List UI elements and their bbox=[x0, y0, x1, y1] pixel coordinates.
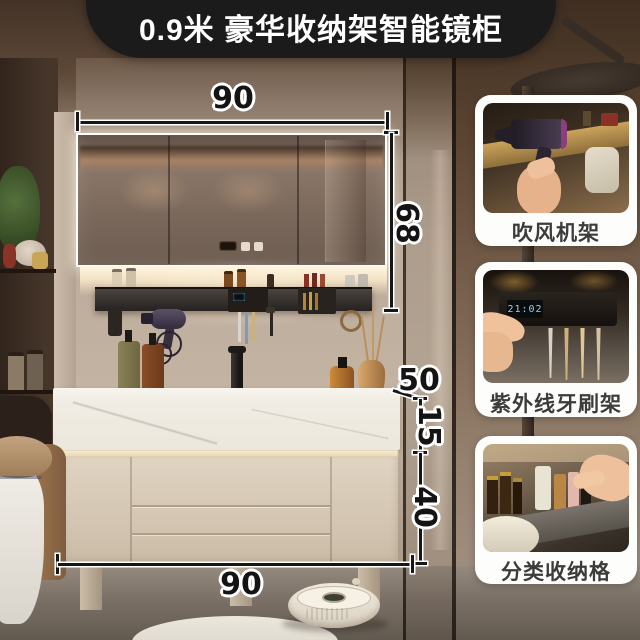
amber-bottle-cap bbox=[338, 357, 347, 368]
under-counter-light bbox=[60, 450, 398, 457]
amber-glow bbox=[489, 270, 539, 294]
toothbrush bbox=[238, 312, 241, 342]
mirror-seam bbox=[168, 136, 170, 264]
mirror-defog-button-icon bbox=[254, 242, 263, 251]
feature-label: 分类收纳格 bbox=[483, 552, 629, 590]
hair-dryer-ring bbox=[561, 119, 567, 149]
glass-frame-line bbox=[452, 55, 456, 640]
feature-card-hair-dryer: 吹风机架 bbox=[475, 95, 637, 246]
hair-dryer-barrel bbox=[511, 119, 563, 149]
mirror-light-spot bbox=[118, 168, 190, 214]
cabinet-leg bbox=[80, 566, 102, 610]
gold-jar bbox=[32, 252, 48, 269]
page-title: 0.9米 豪华收纳架智能镜柜 bbox=[139, 5, 503, 49]
dimension-top-width: 90 bbox=[188, 84, 278, 114]
mirror-door-reflection bbox=[325, 140, 366, 262]
toilet-seat-line bbox=[0, 476, 42, 479]
dimension-bottom-width: 90 bbox=[196, 570, 286, 600]
gold-tool bbox=[315, 293, 318, 310]
feature-card-storage: 分类收纳格 bbox=[475, 436, 637, 584]
amber-glow bbox=[569, 270, 619, 292]
dimension-cabinet-height: 40 bbox=[409, 485, 439, 529]
drawer-seam bbox=[330, 457, 332, 566]
feature-label: 紫外线牙刷架 bbox=[483, 383, 629, 423]
pump-top bbox=[149, 333, 156, 345]
drawer-groove bbox=[132, 533, 330, 535]
cosmetic-bottle bbox=[487, 476, 498, 514]
sterilizer-display bbox=[233, 293, 245, 301]
small-bottle bbox=[583, 111, 591, 126]
storage-photo bbox=[483, 444, 629, 552]
title-banner: 0.9米 豪华收纳架智能镜柜 bbox=[86, 0, 556, 58]
feature-card-toothbrush: 21:02 紫外线牙刷架 bbox=[475, 262, 637, 417]
toothbrush-handle bbox=[547, 328, 554, 378]
towel-ring bbox=[340, 310, 362, 332]
toothbrush bbox=[245, 312, 248, 344]
clock-time: 21:02 bbox=[507, 304, 542, 315]
hair-dryer-photo bbox=[483, 103, 629, 213]
dried-sprig bbox=[372, 310, 374, 364]
dimension-counter-depth: 50 bbox=[396, 366, 442, 396]
mirror-time-display bbox=[219, 241, 237, 251]
glass-frame-line bbox=[403, 58, 406, 640]
vanity-cabinet bbox=[62, 457, 398, 566]
robot-vacuum-bump bbox=[352, 578, 360, 585]
rack-lipstick bbox=[320, 274, 325, 288]
cosmetic-bottle bbox=[554, 474, 566, 510]
gold-tool bbox=[309, 292, 312, 310]
hand bbox=[483, 332, 513, 372]
toothbrush-handle bbox=[563, 328, 570, 380]
toothbrush-handle bbox=[595, 328, 602, 380]
dimension-counter-thickness: 15 bbox=[413, 405, 443, 445]
rack-lipstick bbox=[304, 274, 309, 288]
dimension-line bbox=[58, 563, 414, 566]
toothbrush-photo: 21:02 bbox=[483, 270, 629, 383]
toothbrush bbox=[252, 312, 255, 342]
toothbrush-handle bbox=[579, 328, 586, 378]
hanging-towel bbox=[108, 309, 122, 336]
dimension-tick bbox=[411, 555, 414, 573]
robot-vacuum-button bbox=[322, 592, 346, 603]
pump-top bbox=[125, 330, 132, 342]
razor-head bbox=[266, 307, 275, 313]
mirror-light-button-icon bbox=[241, 242, 250, 251]
dimension-mirror-height: 68 bbox=[391, 193, 421, 253]
red-pouch bbox=[601, 113, 618, 126]
rack-lipstick bbox=[312, 273, 317, 288]
robot-vacuum-vent bbox=[306, 608, 348, 620]
mirror-light-spot bbox=[212, 168, 284, 214]
marble-cup bbox=[585, 147, 619, 193]
shelf-bottle bbox=[27, 350, 43, 394]
razor-icon bbox=[270, 310, 273, 336]
clock-display: 21:02 bbox=[507, 300, 543, 318]
drawer-seam bbox=[130, 457, 132, 566]
perfume-bottle bbox=[3, 244, 16, 268]
cosmetic-bottle bbox=[513, 478, 522, 514]
cosmetic-bottle bbox=[535, 466, 551, 510]
dimension-line bbox=[78, 121, 389, 124]
mirror-seam bbox=[297, 136, 299, 264]
dimension-tick bbox=[76, 112, 79, 131]
feature-label: 吹风机架 bbox=[483, 213, 629, 251]
cosmetic-bottle bbox=[500, 472, 511, 514]
dimension-tick bbox=[384, 309, 398, 312]
dimension-tick bbox=[413, 562, 427, 565]
shelf-board bbox=[0, 390, 56, 394]
gold-tool bbox=[303, 293, 306, 310]
shelf-board bbox=[0, 269, 56, 273]
faucet-spout bbox=[228, 346, 246, 353]
drawer-groove bbox=[132, 505, 330, 507]
hair-dryer-nozzle bbox=[141, 313, 153, 324]
dimension-tick bbox=[386, 112, 389, 131]
shelf-bottle bbox=[8, 352, 24, 394]
product-image: 90 68 50 15 40 90 0.9米 豪华收纳架智能镜柜 bbox=[0, 0, 640, 640]
